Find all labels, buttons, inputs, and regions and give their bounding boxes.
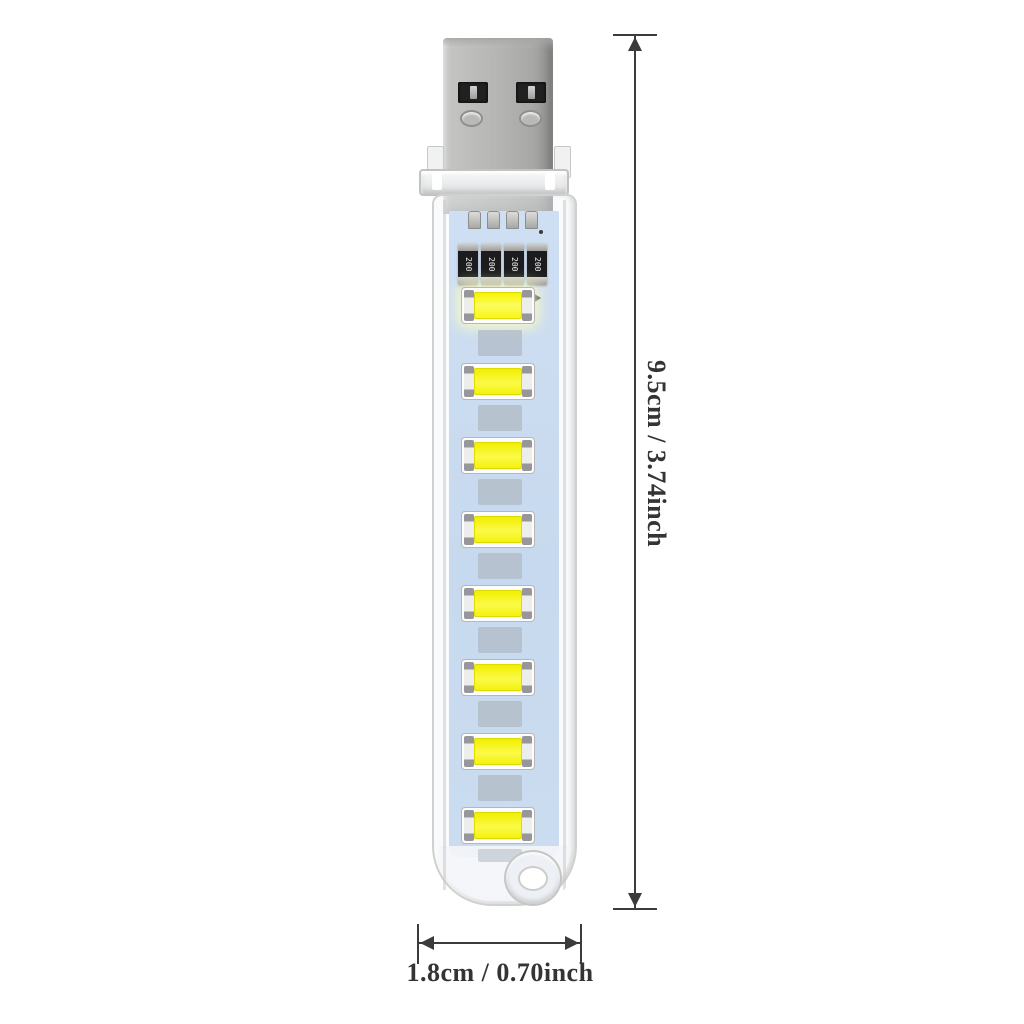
width-dimension-label: 1.8cm / 0.70inch (398, 958, 602, 988)
usb-connector-slot (516, 82, 546, 103)
arrow-left-icon (420, 936, 434, 950)
led (461, 511, 535, 548)
collar-highlight (545, 173, 555, 190)
usb-contact-finger (487, 211, 500, 229)
arrow-up-icon (628, 37, 642, 51)
body-inner-wall-left (443, 200, 446, 890)
resistor-cap (481, 277, 501, 285)
height-dimension-label: 9.5cm / 3.74inch (641, 360, 671, 547)
width-dimension-line (418, 942, 581, 944)
led (461, 659, 535, 696)
resistor: 200 (504, 243, 524, 285)
pcb-marking-dot (539, 230, 543, 234)
usb-contact-finger (468, 211, 481, 229)
lanyard-loop (504, 850, 562, 906)
resistor-cap (527, 277, 547, 285)
led (461, 437, 535, 474)
resistor-cap (481, 243, 501, 251)
body-inner-wall-right (563, 200, 566, 890)
resistor-body: 200 (481, 251, 501, 277)
led-emitter (474, 442, 522, 469)
usb-contact-finger (506, 211, 519, 229)
height-dimension-line (634, 35, 636, 909)
usb-connector-dimple (460, 110, 483, 127)
product-image: 200 200 200 200 (0, 0, 1024, 1024)
resistor-label: 200 (487, 257, 495, 271)
resistor-body: 200 (458, 251, 478, 277)
height-dimension-cap-bottom (613, 908, 657, 910)
arrow-right-icon (565, 936, 579, 950)
solder-pad (478, 330, 522, 356)
solder-pad (478, 701, 522, 727)
usb-connector-dimple (519, 110, 542, 127)
led-emitter (474, 590, 522, 617)
led-emitter (474, 292, 522, 319)
led-emitter (474, 664, 522, 691)
led-emitter (474, 368, 522, 395)
resistor-body: 200 (504, 251, 524, 277)
lanyard-hole (518, 866, 548, 891)
solder-pad (478, 627, 522, 653)
led (461, 733, 535, 770)
resistor-body: 200 (527, 251, 547, 277)
solder-pad (478, 775, 522, 801)
solder-pad (478, 405, 522, 431)
usb-contact-finger (525, 211, 538, 229)
resistor-label: 200 (533, 257, 541, 271)
resistor: 200 (481, 243, 501, 285)
solder-pad (478, 553, 522, 579)
resistor-label: 200 (464, 257, 472, 271)
resistor-cap (504, 243, 524, 251)
led-emitter (474, 516, 522, 543)
resistor-cap (458, 243, 478, 251)
resistor-cap (504, 277, 524, 285)
resistor: 200 (527, 243, 547, 285)
resistor: 200 (458, 243, 478, 285)
led (461, 287, 535, 324)
solder-pad (478, 479, 522, 505)
usb-connector-slot (458, 82, 488, 103)
led (461, 363, 535, 400)
collar-highlight (432, 173, 442, 190)
resistor-row: 200 200 200 200 (458, 243, 547, 285)
arrow-down-icon (628, 893, 642, 907)
usb-connector-pin (528, 86, 535, 99)
resistor-cap (458, 277, 478, 285)
led (461, 807, 535, 844)
resistor-label: 200 (510, 257, 518, 271)
led-emitter (474, 812, 522, 839)
led (461, 585, 535, 622)
led-emitter (474, 738, 522, 765)
resistor-cap (527, 243, 547, 251)
usb-connector-top-edge (443, 38, 553, 47)
usb-connector-pin (470, 86, 477, 99)
